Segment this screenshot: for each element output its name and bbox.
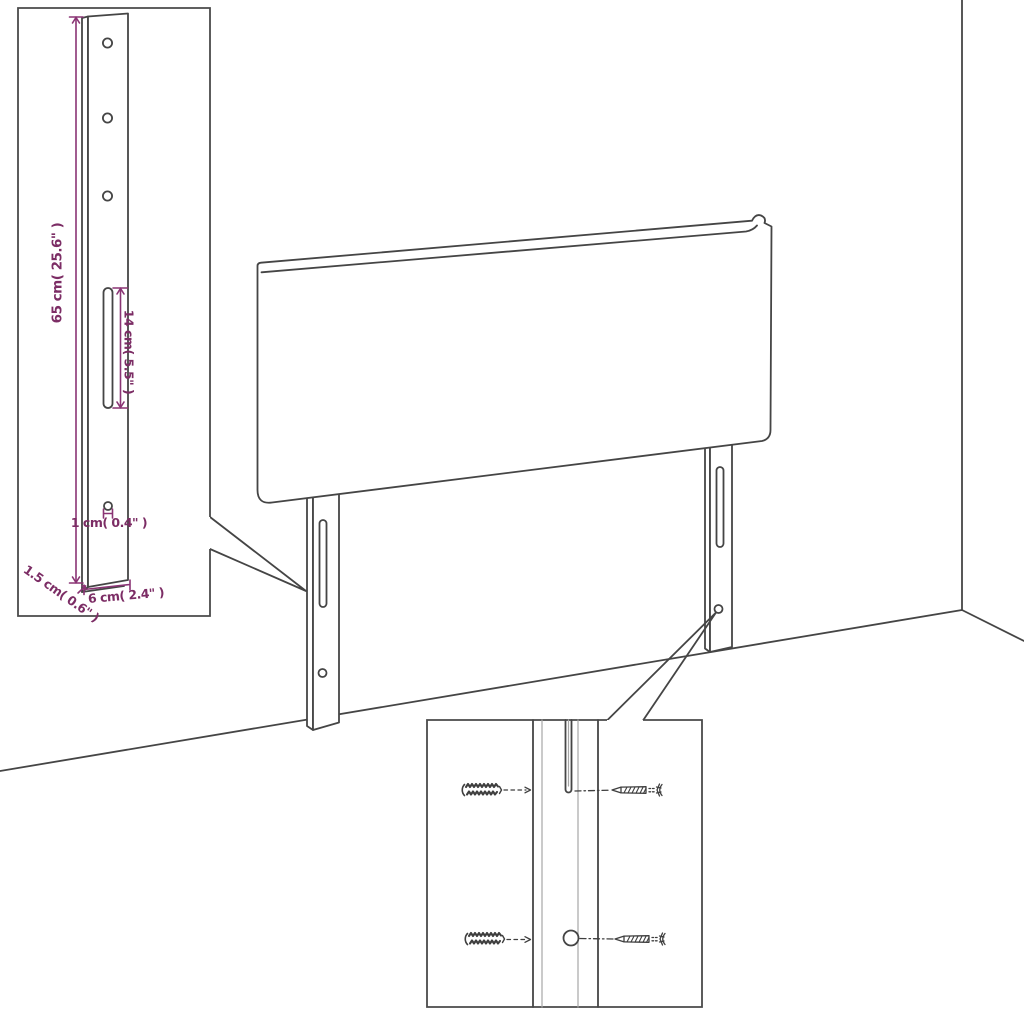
leg-small-hole [104,502,112,510]
leg-hole-top [103,38,112,47]
left-leg-slot [320,520,327,607]
headboard-left-leg [307,484,339,730]
leg-hole-bottom [103,191,112,200]
dimension-label-leg-height: 65 cm( 25.6" ) [51,223,65,324]
headboard-panel [258,215,772,503]
leg-hole-middle [103,113,112,122]
right-leg-slot [717,467,724,547]
callout-left-leg [210,517,306,591]
headboard-assembly-diagram: 65 cm( 25.6" ) 14 cm( 5.5" ) 1 cm( 0.4" … [0,0,1024,1024]
left-leg-hole [319,669,327,677]
mounting-detail-inset [427,720,702,1007]
dimension-label-hole-diameter: 1 cm( 0.4" ) [71,517,147,530]
floor-line-right [962,610,1024,641]
leg-slot [104,288,113,408]
dimension-label-slot-height: 14 cm( 5.5" ) [122,310,135,394]
diagram-line-art [0,0,1024,1024]
hole-closeup [564,931,579,946]
